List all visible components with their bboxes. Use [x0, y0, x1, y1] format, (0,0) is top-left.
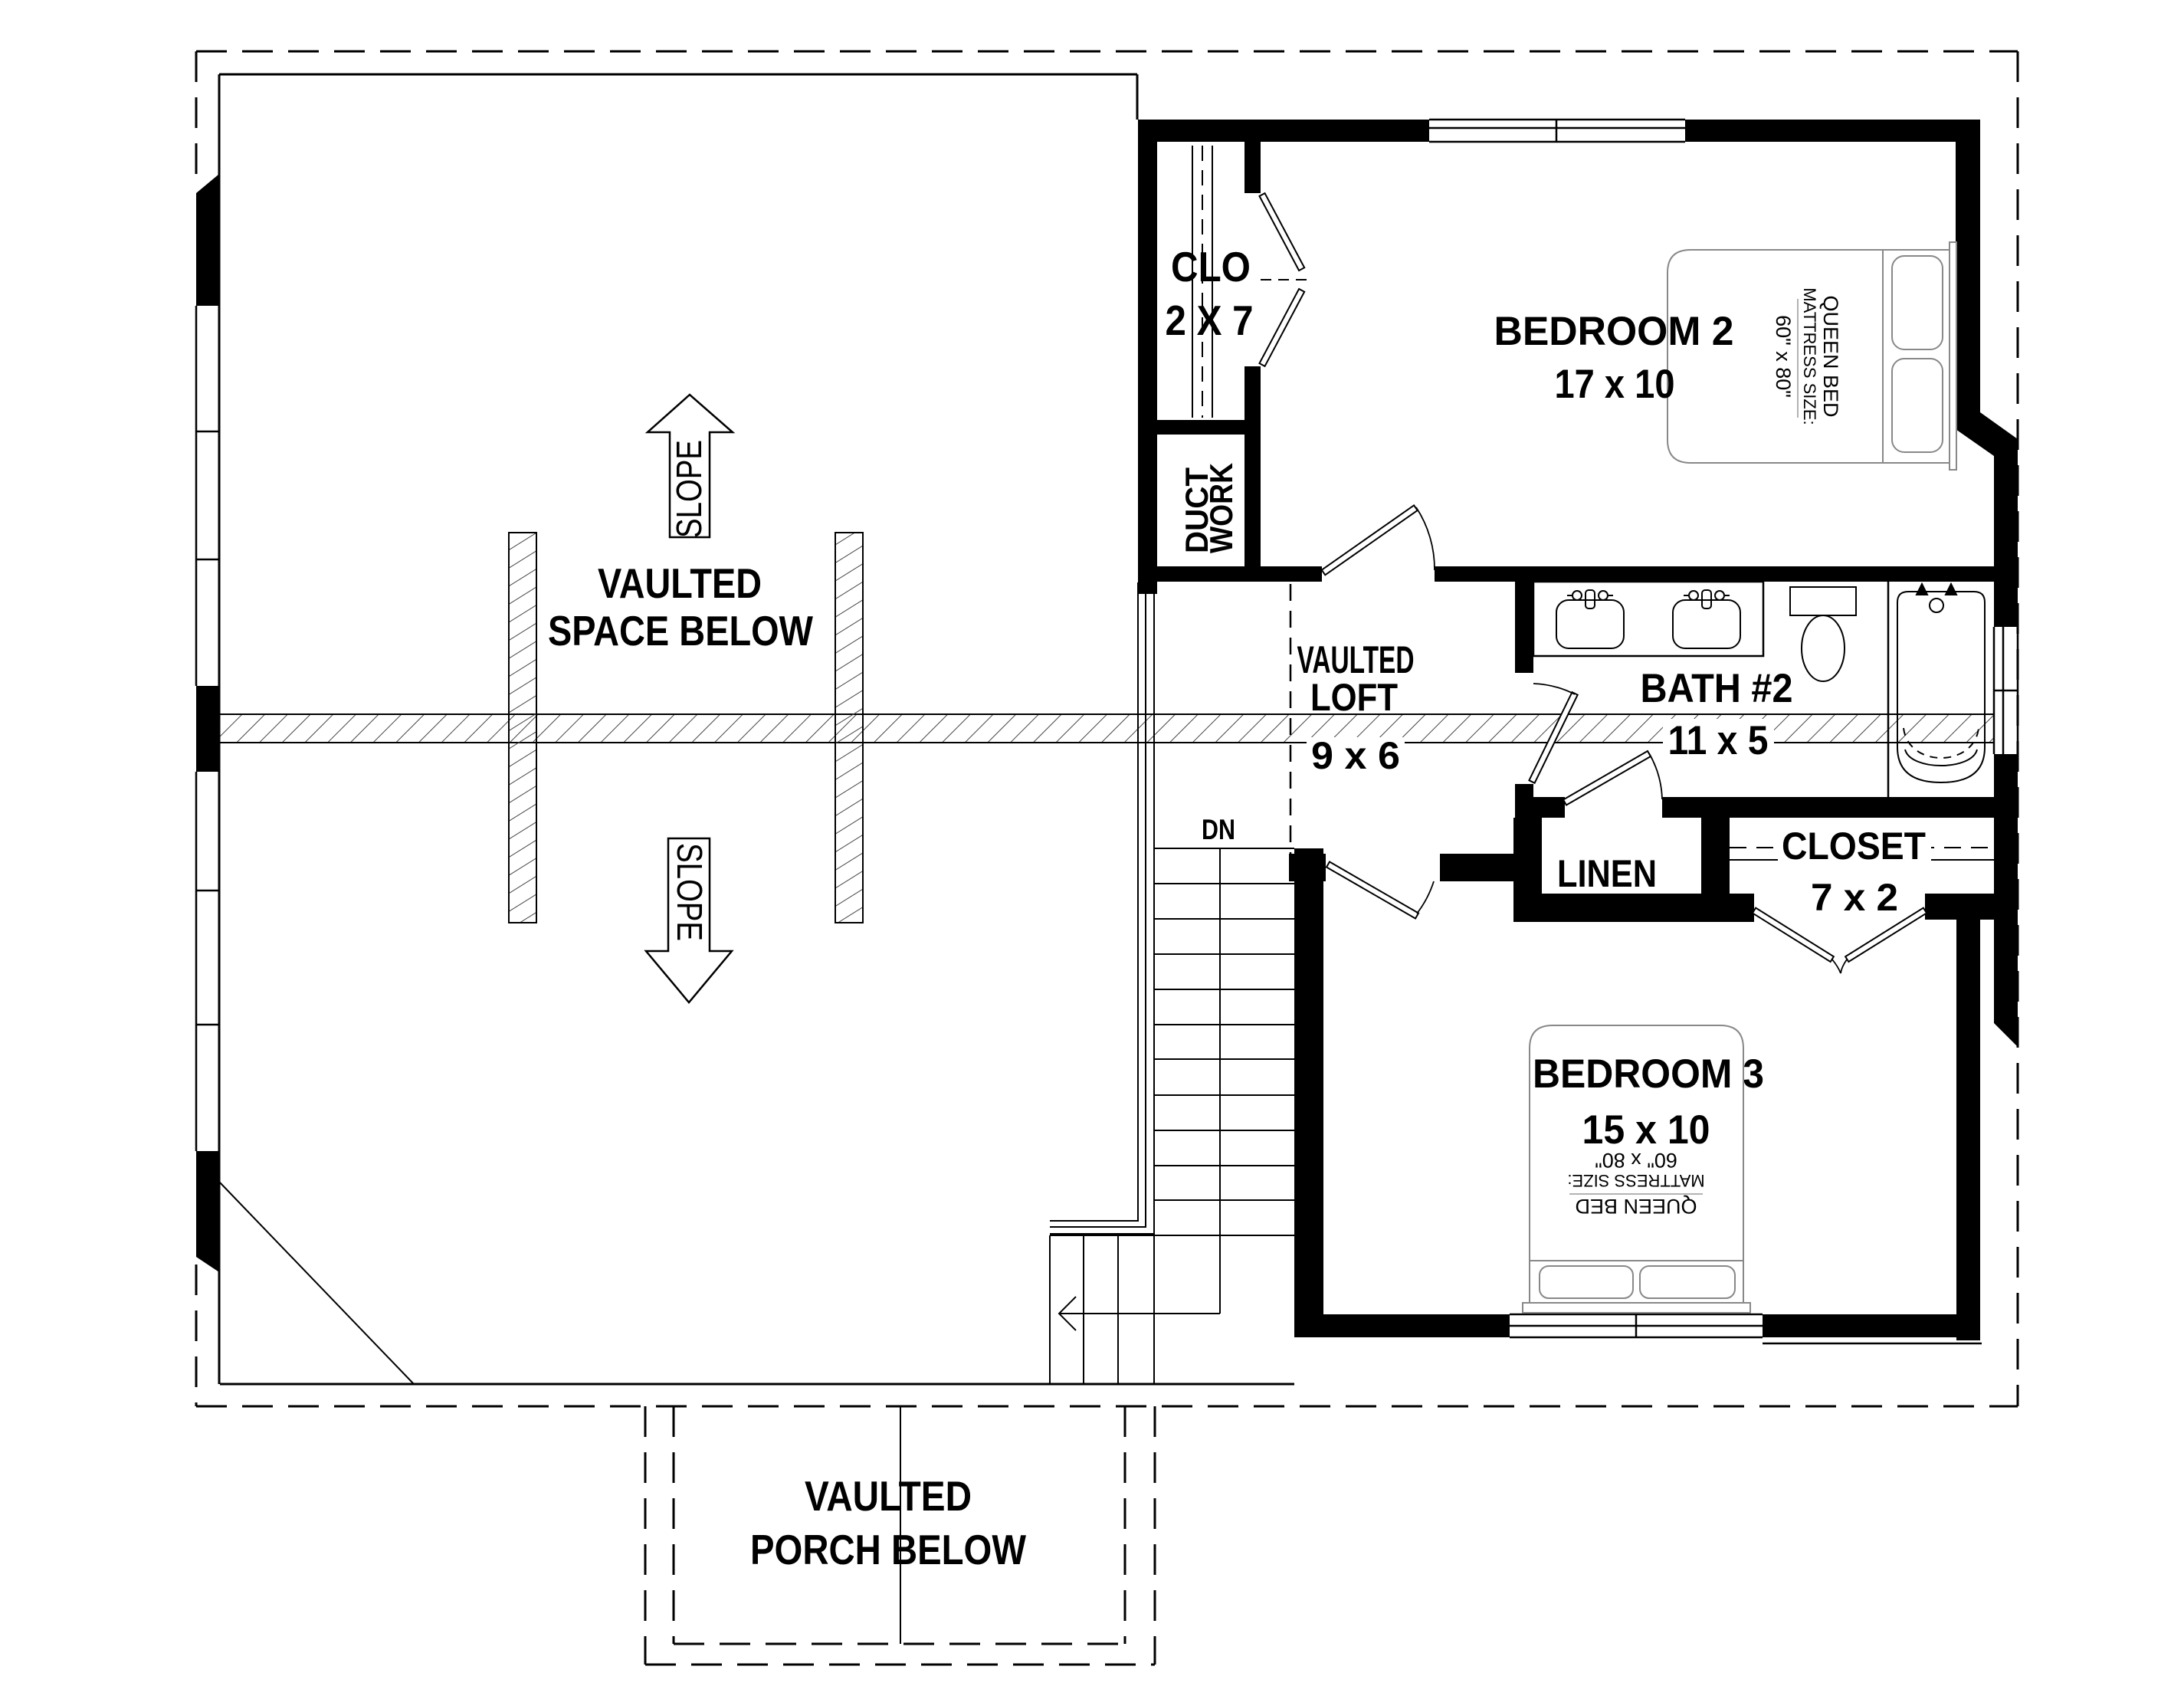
svg-text:15 x 10: 15 x 10	[1582, 1107, 1710, 1153]
svg-text:11 x 5: 11 x 5	[1668, 718, 1769, 763]
svg-text:PORCH BELOW: PORCH BELOW	[750, 1526, 1026, 1573]
svg-text:2 X 7: 2 X 7	[1166, 297, 1254, 344]
svg-text:7 x 2: 7 x 2	[1811, 876, 1898, 919]
svg-text:WORK: WORK	[1203, 463, 1239, 553]
svg-text:CLOSET: CLOSET	[1782, 825, 1926, 868]
svg-text:LOFT: LOFT	[1310, 676, 1398, 719]
svg-text:VAULTED: VAULTED	[598, 559, 762, 607]
svg-text:MATTRESS SIZE:: MATTRESS SIZE:	[1800, 287, 1819, 425]
svg-text:17 x 10: 17 x 10	[1555, 362, 1675, 407]
svg-text:QUEEN BED: QUEEN BED	[1575, 1195, 1697, 1218]
svg-text:SLOPE: SLOPE	[669, 440, 709, 538]
svg-text:BEDROOM 3: BEDROOM 3	[1533, 1051, 1764, 1097]
svg-text:DN: DN	[1202, 814, 1235, 845]
svg-text:QUEEN BED: QUEEN BED	[1819, 295, 1842, 417]
svg-text:60" x 80": 60" x 80"	[1772, 315, 1795, 398]
svg-text:CLO: CLO	[1171, 243, 1251, 290]
svg-text:60" x 80": 60" x 80"	[1595, 1149, 1677, 1172]
svg-text:MATTRESS SIZE:: MATTRESS SIZE:	[1567, 1171, 1704, 1190]
svg-text:BEDROOM 2: BEDROOM 2	[1494, 309, 1734, 354]
svg-text:SPACE BELOW: SPACE BELOW	[548, 607, 813, 654]
svg-text:VAULTED: VAULTED	[805, 1472, 972, 1520]
svg-text:SLOPE: SLOPE	[670, 843, 710, 941]
svg-text:9 x 6: 9 x 6	[1311, 734, 1400, 777]
svg-text:BATH #2: BATH #2	[1641, 666, 1793, 711]
svg-text:LINEN: LINEN	[1557, 852, 1657, 895]
svg-text:VAULTED: VAULTED	[1297, 638, 1415, 681]
